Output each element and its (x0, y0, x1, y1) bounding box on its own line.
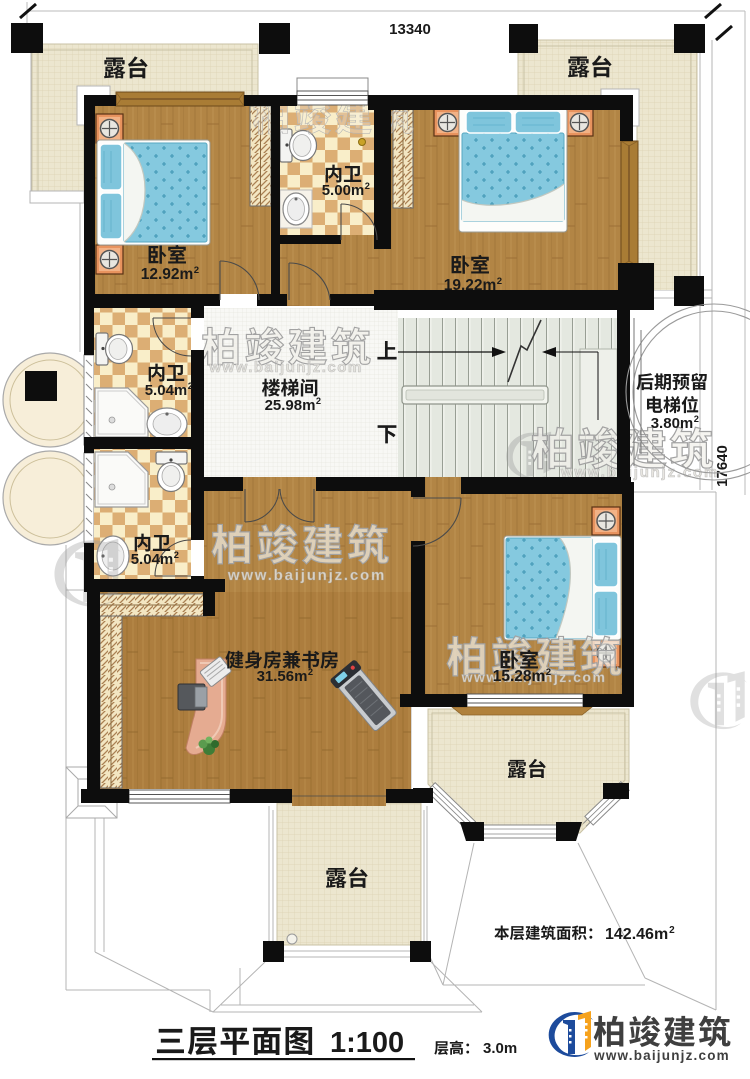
svg-text:2: 2 (365, 181, 370, 191)
svg-text:142.46m: 142.46m (605, 926, 668, 943)
svg-text:2: 2 (308, 667, 313, 677)
svg-text:www.baijunjz.com: www.baijunjz.com (593, 1048, 730, 1063)
svg-text:2: 2 (316, 396, 321, 406)
svg-text:2: 2 (669, 925, 675, 936)
svg-text:2: 2 (188, 381, 193, 391)
svg-text:1:100: 1:100 (330, 1027, 404, 1059)
svg-text:2: 2 (497, 276, 502, 287)
svg-text:13340: 13340 (389, 21, 431, 38)
svg-text:31.56m: 31.56m (257, 668, 308, 685)
svg-text:2: 2 (694, 414, 699, 424)
svg-text:www.baijunjz.com: www.baijunjz.com (227, 567, 386, 584)
svg-text:5.00m: 5.00m (322, 182, 365, 199)
svg-text:3.80m: 3.80m (651, 415, 694, 432)
svg-text:19.22m: 19.22m (444, 277, 497, 294)
svg-text:5.04m: 5.04m (131, 551, 174, 568)
svg-text:3.0m: 3.0m (483, 1040, 517, 1057)
svg-text:15.28m: 15.28m (493, 668, 546, 685)
svg-text:2: 2 (546, 667, 551, 678)
svg-text:www.baijunjz.com: www.baijunjz.com (208, 359, 362, 376)
svg-text:2: 2 (174, 550, 179, 560)
svg-text:5.04m: 5.04m (145, 382, 188, 399)
svg-text:25.98m: 25.98m (265, 397, 316, 414)
svg-text:2: 2 (194, 265, 199, 276)
svg-text:12.92m: 12.92m (141, 266, 194, 283)
